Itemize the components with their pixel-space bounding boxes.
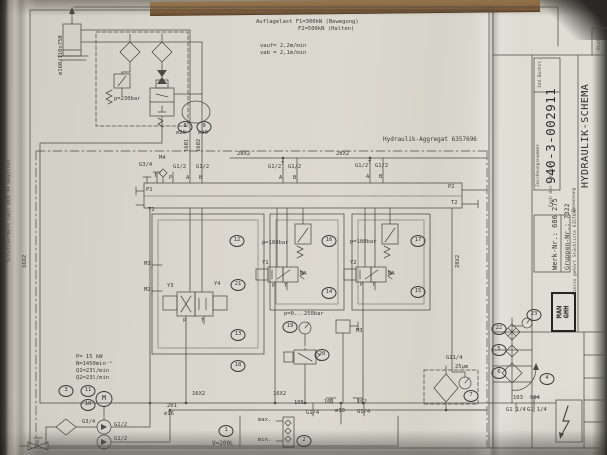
diagram-label: Y4 <box>214 281 221 287</box>
diagram-label: M2 <box>144 287 151 293</box>
diagram-label: 103 <box>513 395 523 401</box>
return-filter <box>424 208 487 410</box>
gauge-cluster <box>284 320 358 403</box>
werk-number: Werk-Nr.: 686 275 <box>551 198 559 270</box>
photo-scene: Auflagelast F1=300kN (Bewegung)F2=500kN … <box>0 0 607 455</box>
diagram-label: G1 1/4 <box>506 407 526 413</box>
diagram-label: max. <box>258 417 271 423</box>
component-bubble-19: 19 <box>283 321 298 333</box>
diagram-label: Y1 <box>262 260 269 266</box>
diagram-label: vab = 2,1m/min <box>260 50 306 56</box>
component-bubble-3: 3 <box>59 385 74 397</box>
diagram-label: T <box>368 160 371 166</box>
component-bubble-12: 12 <box>230 235 245 247</box>
diagram-label: 1602 <box>196 139 202 152</box>
diagram-label: min. <box>258 437 271 443</box>
diagram-label: p=180bar <box>262 240 289 246</box>
component-bubble-15: 15 <box>411 286 426 298</box>
component-bubble-10: 10 <box>81 399 96 411</box>
diagram-label: 201 <box>167 403 177 409</box>
component-bubble-23: 23 <box>527 309 542 321</box>
diagram-label: P <box>360 282 363 288</box>
component-bubble-18: 18 <box>231 360 246 372</box>
diagram-label: G1/2 <box>268 164 281 170</box>
diagram-label: Y2 <box>350 260 357 266</box>
diagram-label: MA <box>388 271 395 277</box>
diagram-label: Q2=23l/min <box>76 375 109 381</box>
diagram-label: 28X2 <box>336 151 349 157</box>
diagram-label: 101 <box>324 399 334 405</box>
diagram-label: p=230bar <box>114 96 141 102</box>
diagram-label: B <box>379 174 382 180</box>
diagram-label: ⌀10 <box>335 408 345 414</box>
component-bubble-13: 13 <box>231 329 246 341</box>
diagram-label: A <box>366 174 369 180</box>
gruppen-number: Gruppen-Nr.: 7322 <box>563 203 571 270</box>
diagram-label: G1/2 <box>114 422 127 428</box>
valve-station-1 <box>152 208 264 403</box>
diagram-label: G1/2 <box>355 163 368 169</box>
diagram-label: M1 <box>144 261 151 267</box>
component-bubble-2: 2 <box>297 435 312 447</box>
diagram-label: G1/2 <box>114 436 127 442</box>
diagram-label: G1/4 <box>357 409 370 415</box>
junction-dots <box>149 157 448 412</box>
component-bubble-16: 16 <box>322 235 337 247</box>
diagram-label: Auflagelast F1=300kN (Bewegung) <box>256 19 359 25</box>
diagram-label: G3/4 <box>139 162 152 168</box>
component-bubble-11: 11 <box>81 385 96 397</box>
diagram-label: G1/2 <box>173 164 186 170</box>
diagram-label: G1/4 <box>306 410 319 416</box>
card-file-label: Fach der Kartei: <box>549 164 554 207</box>
component-bubble-22: 22 <box>492 323 507 335</box>
diagram-label: Q1=23l/min <box>76 368 109 374</box>
component-bubble-5: 5 <box>492 344 507 356</box>
diagram-label: F2=500kN (Halten) <box>298 26 354 32</box>
diagram-label: 16X2 <box>22 255 28 268</box>
diagram-label: M3 <box>356 328 363 334</box>
diagram-label: G1/2 <box>288 164 301 170</box>
diagram-label: 28X2 <box>455 255 461 268</box>
diagram-label: P= 15 kW <box>76 354 103 360</box>
protection-note: Schutzvermerk nach DIN 34 beachten <box>6 160 12 262</box>
diagram-label: G1 1/4 <box>527 407 547 413</box>
sheet-number: Blatt 1 <box>597 31 602 50</box>
diagram-label: MA <box>300 271 307 277</box>
component-bubble-6: 6 <box>492 367 507 379</box>
diagram-label: 25μm <box>455 364 468 370</box>
diagram-label: P1 <box>146 187 153 193</box>
diagram-label: T <box>372 282 375 288</box>
diagram-label: G11/4 <box>446 355 463 361</box>
drawing-title: HYDRAULIK-SCHEMA <box>580 84 591 188</box>
diagram-label: G1/2 <box>375 163 388 169</box>
component-bubble-4: 4 <box>540 373 555 385</box>
motor-pump-group <box>20 208 240 450</box>
component-bubble-7: 7 <box>464 390 479 402</box>
diagram-label: P2 <box>448 184 455 190</box>
drawing-number-label: Zeichnungsnummer <box>536 144 541 187</box>
diagram-label: 28X2 <box>237 151 250 157</box>
diagram-label: B <box>199 175 202 181</box>
diagram-label: ⌀160/110x750 <box>58 35 64 75</box>
corner-mark-box <box>556 400 582 442</box>
diagram-label: Hydraulik-Aggregat 6357696 <box>383 137 477 144</box>
diagram-label: T <box>284 283 287 289</box>
diagram-label: ⌀16 <box>164 411 174 417</box>
diagram-label: 105 <box>294 400 304 406</box>
component-bubble-20: 20 <box>315 349 330 361</box>
component-bubble-17: 17 <box>411 235 426 247</box>
man-ghh-logo: MAN GHH <box>551 292 576 332</box>
manifold-block <box>136 158 487 208</box>
diagram-label: P <box>183 318 186 324</box>
diagram-label: G3/4 <box>82 419 95 425</box>
diagram-label: M4 <box>159 155 166 161</box>
diagram-label: P <box>272 283 275 289</box>
diagram-label: B <box>293 175 296 181</box>
parts-list-note: Hierzu gehört Stückliste 6357696 <box>573 208 578 295</box>
diagram-label: G1/2 <box>196 164 209 170</box>
component-bubble-9: 9 <box>197 121 212 133</box>
diagram-label: P <box>169 175 172 181</box>
component-bubble-8: 8 <box>178 121 193 133</box>
cylinder-valve-block <box>40 32 202 403</box>
component-bubble-1: 1 <box>219 425 234 437</box>
diagram-label: T <box>281 161 284 167</box>
diagram-label: N=1450min⁻¹ <box>76 361 112 367</box>
component-bubble-M: M <box>96 391 113 407</box>
diagram-label: 16X2 <box>192 391 205 397</box>
diagram-label: A <box>279 175 282 181</box>
diagram-label: 1601 <box>184 139 190 152</box>
diagram-label: 102 <box>357 399 367 405</box>
cylinder-symbol <box>58 7 558 60</box>
diagram-label: p=0...250bar <box>284 311 324 317</box>
component-bubble-21: 21 <box>231 279 246 291</box>
cylinder-lines <box>182 30 210 183</box>
diagram-label: T <box>154 173 157 179</box>
component-bubble-14: 14 <box>322 287 337 299</box>
diagram-label: T1 <box>148 207 155 213</box>
diagram-label: vauf= 2,2m/min <box>260 43 306 49</box>
diagram-label: Y3 <box>167 283 174 289</box>
diagram-label: T <box>201 318 204 324</box>
diagram-label: 16X2 <box>273 391 286 397</box>
man-ghh-logo-text: MAN GHH <box>557 306 571 319</box>
diagram-label: 104 <box>530 395 540 401</box>
diagram-label: p=180bar <box>350 239 377 245</box>
diagram-label: T2 <box>451 200 458 206</box>
diagram-label: A <box>186 175 189 181</box>
index-letter-label: Ind.Buchst. <box>538 58 543 88</box>
diagram-label: V=200L <box>212 441 234 448</box>
